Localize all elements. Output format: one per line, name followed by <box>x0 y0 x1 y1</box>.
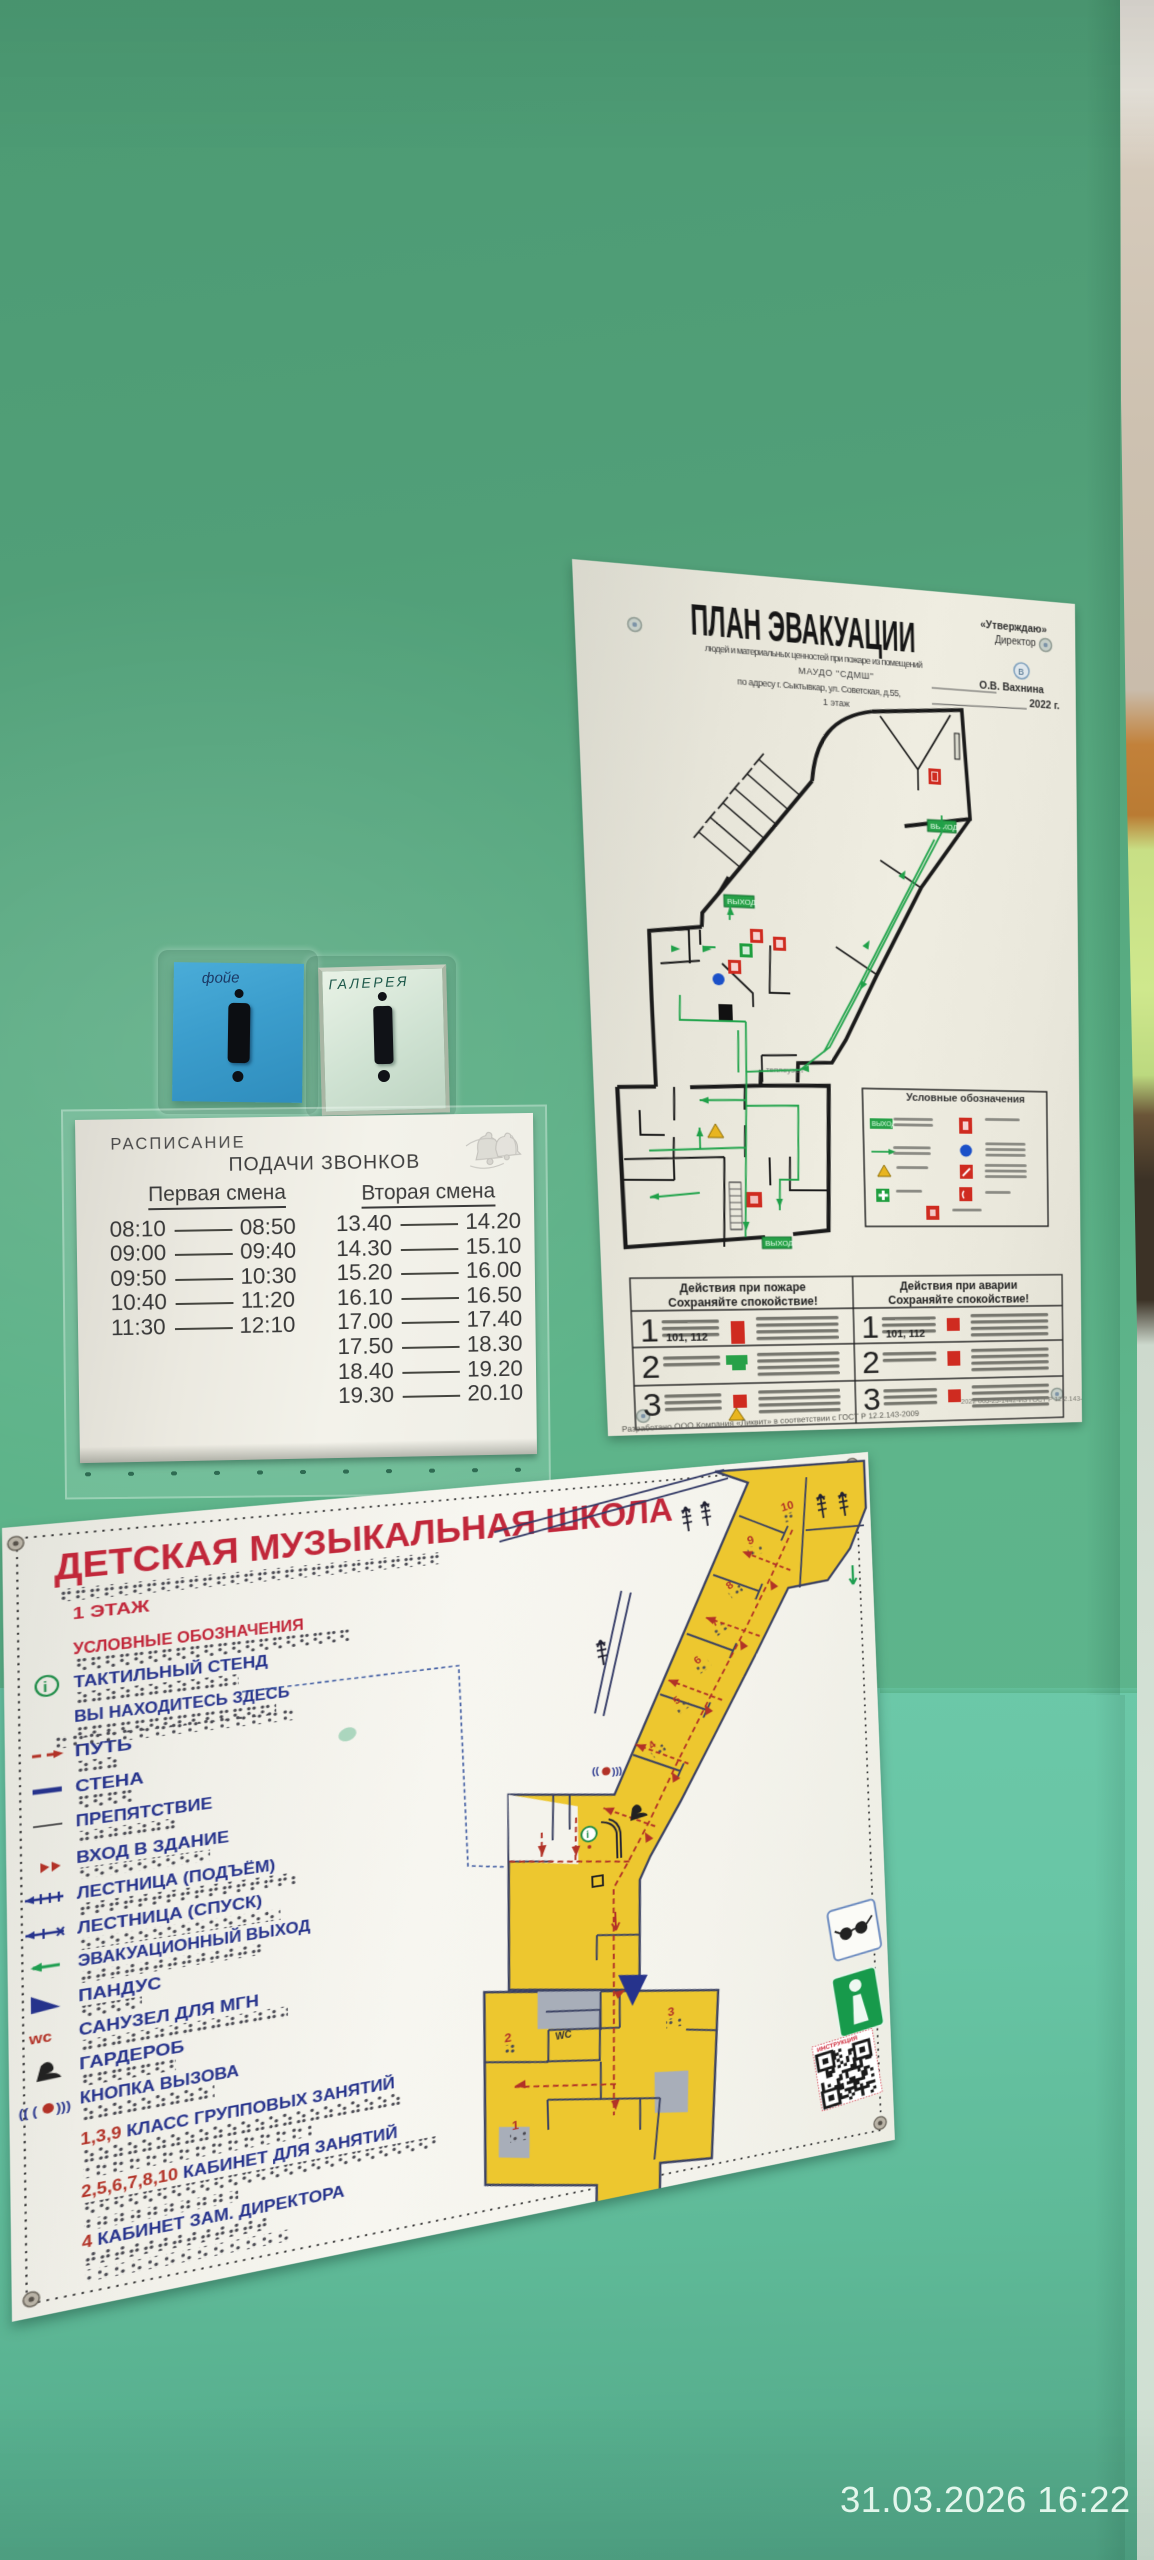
svg-text:ВЫХОД: ВЫХОД <box>765 1239 793 1247</box>
svg-text:))): ))) <box>56 2098 71 2115</box>
svg-text:((: (( <box>18 2105 29 2121</box>
svg-text:1: 1 <box>639 1313 659 1350</box>
svg-text:2: 2 <box>504 2030 511 2045</box>
svg-text:по адресу г. Сыктывкар, ул. Со: по адресу г. Сыктывкар, ул. Советская, д… <box>737 677 901 699</box>
svg-text:))): ))) <box>612 1766 623 1778</box>
svg-text:2: 2 <box>862 1345 881 1380</box>
svg-text:«Утверждаю»: «Утверждаю» <box>980 618 1047 636</box>
svg-text:Сохраняйте спокойствие!: Сохраняйте спокойствие! <box>668 1295 818 1309</box>
svg-text:1: 1 <box>512 2118 520 2133</box>
svg-text:В: В <box>1018 668 1024 678</box>
svg-text:ВЫХОД: ВЫХОД <box>872 1120 897 1128</box>
svg-text:3: 3 <box>642 1387 662 1423</box>
svg-text:(: ( <box>32 2104 38 2120</box>
svg-text:1: 1 <box>861 1310 880 1345</box>
svg-text:1 ЭТАЖ: 1 ЭТАЖ <box>73 1597 151 1623</box>
svg-text:Условные обозначения: Условные обозначения <box>906 1091 1025 1105</box>
svg-text:101, 112: 101, 112 <box>666 1331 708 1343</box>
svg-text:101, 112: 101, 112 <box>886 1328 925 1340</box>
svg-text:3: 3 <box>667 2005 675 2019</box>
svg-text:i: i <box>43 1680 48 1696</box>
svg-text:Действия при аварии: Действия при аварии <box>900 1279 1018 1292</box>
svg-text:О.В. Вахнина: О.В. Вахнина <box>979 679 1044 696</box>
svg-text:2: 2 <box>641 1349 661 1385</box>
svg-text:i: i <box>586 1830 589 1841</box>
svg-text:Директор: Директор <box>995 635 1036 649</box>
svg-text:МАУДО "СДМШ": МАУДО "СДМШ" <box>798 666 874 682</box>
svg-text:ВЫХОД: ВЫХОД <box>727 897 756 907</box>
svg-text:Действия при пожаре: Действия при пожаре <box>679 1281 806 1295</box>
svg-text:СТЕНА: СТЕНА <box>75 1768 144 1796</box>
svg-text:Сохраняйте спокойствие!: Сохраняйте спокойствие! <box>888 1293 1029 1307</box>
svg-text:2022 г.: 2022 г. <box>1029 697 1059 711</box>
svg-text:1 этаж: 1 этаж <box>823 698 850 710</box>
svg-text:wc: wc <box>28 2029 52 2049</box>
svg-text:((: (( <box>592 1766 599 1777</box>
